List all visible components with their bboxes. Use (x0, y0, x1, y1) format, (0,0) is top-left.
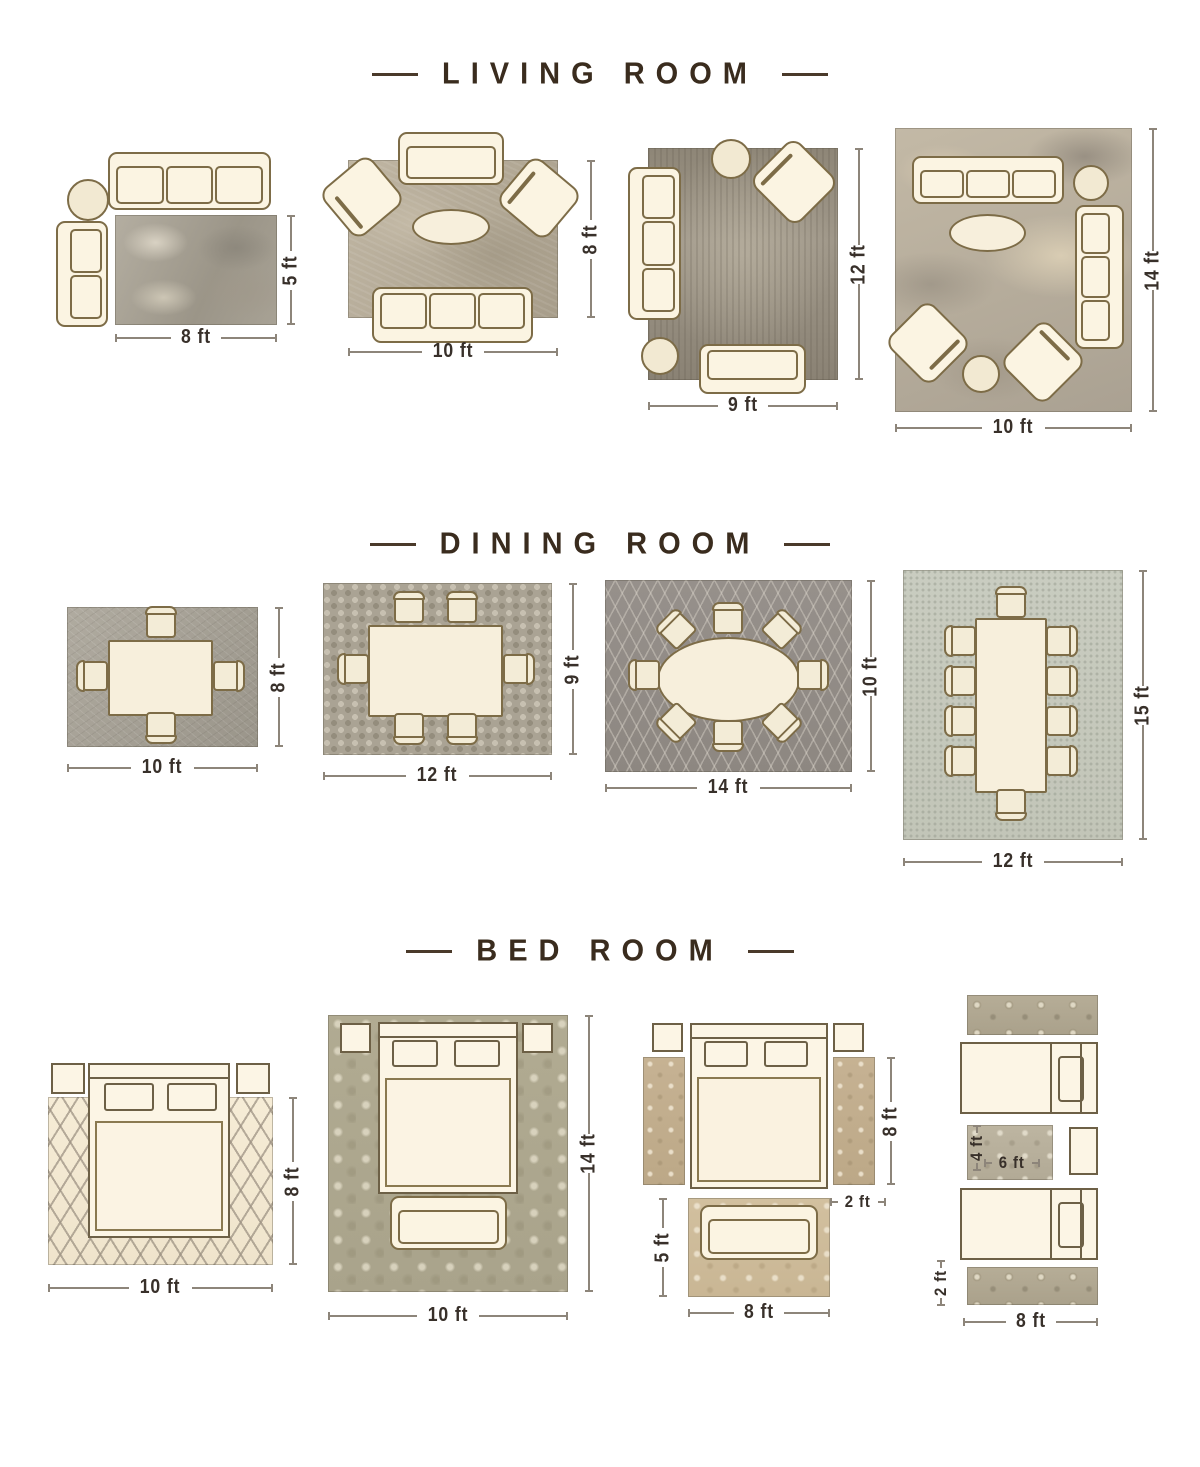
sofa-cushion (116, 166, 164, 204)
dimension-line (940, 1260, 942, 1268)
nightstand (652, 1023, 683, 1052)
sofa-cushion (1081, 300, 1110, 341)
round-side-table (67, 179, 109, 221)
height-dimension: 14 ft (1142, 128, 1164, 412)
width-dimension: 12 ft (903, 850, 1123, 873)
dining-chair (634, 660, 660, 690)
bed (378, 1022, 518, 1194)
dimension-label: 2 ft (931, 1270, 951, 1296)
dimension-line (895, 427, 982, 429)
title-dash (372, 73, 418, 76)
dining-room-title: DINING ROOM (0, 528, 1200, 561)
dimension-line (278, 607, 280, 658)
dimension-label: 8 ft (580, 224, 603, 254)
dimension-line (590, 259, 592, 319)
runner-rug (643, 1057, 685, 1185)
dining-chair (146, 712, 176, 738)
bench (390, 1196, 507, 1250)
pillow (392, 1040, 438, 1067)
dimension-line (292, 1097, 294, 1162)
dimension-label: 8 ft (1016, 1310, 1046, 1333)
width-dimension: 9 ft (648, 394, 838, 417)
dining-chair (996, 592, 1026, 618)
dimension-label: 10 ft (428, 1304, 469, 1327)
dimension-line (662, 1198, 664, 1228)
dining-table (975, 618, 1047, 793)
oval-coffee-table (949, 214, 1026, 252)
dimension-line (590, 160, 592, 220)
dimension-line (67, 767, 131, 769)
pillow (704, 1041, 748, 1067)
loveseat (398, 132, 504, 185)
dimension-line (768, 405, 838, 407)
runner-rug (833, 1057, 875, 1185)
width-dimension: 10 ft (895, 416, 1132, 439)
nightstand (340, 1023, 371, 1053)
headboard (1080, 1190, 1096, 1258)
dimension-line (878, 1201, 886, 1203)
dimension-line (469, 775, 552, 777)
title-dash (782, 73, 828, 76)
sofa-cushion (642, 268, 675, 312)
dimension-line (328, 1315, 417, 1317)
dimension-line (648, 405, 718, 407)
dimension-label: 6 ft (999, 1153, 1025, 1173)
sofa-cushion (70, 229, 102, 273)
width-dimension: 10 ft (67, 756, 258, 779)
nightstand (522, 1023, 553, 1053)
dimension-line (830, 1201, 838, 1203)
headboard (692, 1025, 826, 1039)
twin-bed (960, 1042, 1098, 1114)
dimension-line (858, 148, 860, 245)
dimension-line (290, 290, 292, 326)
dimension-line (192, 1287, 273, 1289)
dimension-label: 10 ft (860, 656, 883, 697)
living-rug-8x5 (115, 215, 277, 325)
twin-bed (960, 1188, 1098, 1260)
sofa-cushion (1081, 256, 1110, 297)
dimension-label: 8 ft (282, 1166, 305, 1196)
bed-divider (1050, 1190, 1052, 1258)
dimension-line (662, 1267, 664, 1297)
dining-chair (713, 720, 743, 746)
dining-chair (82, 661, 108, 691)
foot-rug-width-dimension: 8 ft (688, 1301, 830, 1324)
oval-coffee-table (412, 209, 490, 245)
runner-width-dimension: 2 ft (930, 1260, 952, 1312)
dining-chair (797, 660, 823, 690)
dimension-line (572, 689, 574, 756)
dimension-label: 9 ft (562, 654, 585, 684)
dimension-line (484, 351, 558, 353)
dimension-label: 8 ft (181, 326, 211, 349)
dining-chair (394, 597, 424, 623)
dimension-line (115, 337, 171, 339)
dining-chair (950, 706, 976, 736)
dimension-line (323, 775, 406, 777)
dimension-label: 2 ft (845, 1192, 871, 1212)
height-dimension: 8 ft (580, 160, 602, 318)
dining-table (368, 625, 503, 717)
living-room-title-text: LIVING ROOM (442, 57, 758, 92)
nightstand (833, 1023, 864, 1052)
round-ottoman (962, 355, 1000, 393)
pillow (167, 1083, 217, 1111)
round-table (711, 139, 751, 179)
title-dash (748, 950, 794, 953)
dimension-line (890, 1057, 892, 1102)
round-ottoman (641, 337, 679, 375)
dimension-line (278, 697, 280, 748)
dimension-line (1142, 725, 1144, 841)
dimension-line (1045, 427, 1132, 429)
dimension-label: 10 ft (993, 416, 1034, 439)
three-seat-sofa (628, 167, 681, 320)
dimension-label: 8 ft (268, 662, 291, 692)
sofa-cushion (642, 175, 675, 219)
bed (88, 1063, 230, 1238)
dimension-line (48, 1287, 129, 1289)
sofa-cushion (1081, 213, 1110, 254)
dimension-label: 15 ft (1132, 685, 1155, 726)
dimension-line (976, 1125, 978, 1133)
dimension-label: 5 ft (280, 255, 303, 285)
dimension-line (976, 1163, 978, 1171)
dimension-line (784, 1312, 830, 1314)
sofa-cushion (920, 170, 964, 198)
blanket (385, 1078, 511, 1187)
blanket (95, 1121, 223, 1231)
width-dimension: 12 ft (323, 764, 552, 787)
dining-chair (1046, 626, 1072, 656)
dimension-line (588, 1015, 590, 1134)
dimension-line (963, 1321, 1006, 1323)
loveseat (699, 344, 806, 394)
runner-width-dimension: 2 ft (830, 1192, 892, 1212)
headboard (380, 1024, 516, 1038)
dimension-line (290, 215, 292, 251)
dimension-line (1044, 861, 1123, 863)
dimension-label: 8 ft (744, 1301, 774, 1324)
dimension-line (605, 787, 697, 789)
width-dimension: 10 ft (328, 1304, 568, 1327)
dimension-line (858, 284, 860, 381)
dimension-label: 10 ft (142, 756, 183, 779)
sofa-cushion (707, 350, 798, 380)
dimension-line (1152, 290, 1154, 413)
sofa-cushion (1012, 170, 1056, 198)
nightstand (236, 1063, 270, 1094)
pillow (454, 1040, 500, 1067)
dimension-label: 10 ft (433, 340, 474, 363)
dining-chair (950, 626, 976, 656)
dining-chair (394, 713, 424, 739)
title-dash (406, 950, 452, 953)
nightstand (1069, 1127, 1098, 1175)
headboard (90, 1065, 228, 1079)
dining-chair (447, 713, 477, 739)
sofa-cushion (380, 293, 427, 329)
dimension-line (890, 1141, 892, 1186)
dining-chair (950, 666, 976, 696)
height-dimension: 5 ft (280, 215, 302, 325)
dimension-line (194, 767, 258, 769)
dimension-line (870, 696, 872, 773)
dining-chair (996, 789, 1026, 815)
dimension-label: 9 ft (728, 394, 758, 417)
sofa-cushion (406, 146, 496, 179)
three-seat-sofa (1075, 205, 1124, 349)
dining-chair (1046, 706, 1072, 736)
pillow (104, 1083, 154, 1111)
dining-chair (213, 661, 239, 691)
height-dimension: 8 ft (268, 607, 290, 747)
dimension-line (588, 1173, 590, 1292)
dimension-label: 8 ft (880, 1106, 903, 1136)
dimension-line (292, 1201, 294, 1266)
dining-chair (950, 746, 976, 776)
loveseat (700, 1205, 818, 1260)
rug-size-guide: LIVING ROOM 5 ft 8 ft 8 ft (0, 0, 1200, 1467)
sofa-cushion (642, 221, 675, 265)
dining-chair (1046, 666, 1072, 696)
pillow (764, 1041, 808, 1067)
dimension-line (221, 337, 277, 339)
dimension-line (760, 787, 852, 789)
sofa-cushion (70, 275, 102, 319)
dimension-line (1142, 570, 1144, 686)
title-dash (784, 543, 830, 546)
dimension-line (903, 861, 982, 863)
width-dimension: 10 ft (48, 1276, 273, 1299)
dimension-label: 14 ft (578, 1133, 601, 1174)
height-dimension: 10 ft (860, 580, 882, 772)
dining-chair (503, 654, 529, 684)
bed-room-title: BED ROOM (0, 935, 1200, 968)
height-dimension: 8 ft (282, 1097, 304, 1265)
dimension-line (940, 1298, 942, 1306)
sofa-cushion (478, 293, 525, 329)
dimension-label: 12 ft (993, 850, 1034, 873)
sofa-cushion (708, 1219, 810, 1254)
chair-cushion (334, 196, 363, 230)
height-dimension: 12 ft (848, 148, 870, 380)
foot-rug-height-dimension: 5 ft (652, 1198, 674, 1297)
dimension-line (870, 580, 872, 657)
dimension-line (688, 1312, 734, 1314)
title-dash (370, 543, 416, 546)
dimension-line (572, 583, 574, 650)
dining-room-title-text: DINING ROOM (440, 527, 761, 562)
dimension-line (479, 1315, 568, 1317)
height-dimension: 15 ft (1132, 570, 1154, 840)
width-dimension: 14 ft (605, 776, 852, 799)
dimension-label: 12 ft (848, 244, 871, 285)
three-seat-sofa (108, 152, 271, 210)
dining-chair (146, 612, 176, 638)
dimension-label: 12 ft (417, 764, 458, 787)
dining-chair (1046, 746, 1072, 776)
round-side-table (1073, 165, 1109, 201)
dimension-line (1056, 1321, 1099, 1323)
bed (690, 1023, 828, 1189)
dining-table (108, 640, 213, 716)
runner-rug (967, 995, 1098, 1035)
sofa-cushion (966, 170, 1010, 198)
runner-length-dimension: 8 ft (963, 1310, 1098, 1333)
sofa-cushion (166, 166, 214, 204)
dining-chair (713, 608, 743, 634)
sofa-cushion (429, 293, 476, 329)
dimension-line (1152, 128, 1154, 251)
width-dimension: 8 ft (115, 326, 277, 349)
blanket (697, 1077, 821, 1182)
runner-rug (967, 1267, 1098, 1305)
runner-length-dimension: 8 ft (880, 1057, 902, 1185)
dimension-line (984, 1162, 992, 1164)
dimension-line (348, 351, 422, 353)
between-rug-width-dimension: 6 ft (984, 1153, 1048, 1173)
dimension-line (1032, 1162, 1040, 1164)
bed-divider (1050, 1044, 1052, 1112)
dimension-label: 14 ft (1142, 250, 1165, 291)
dimension-label: 5 ft (652, 1233, 675, 1263)
dimension-label: 10 ft (140, 1276, 181, 1299)
bed-room-title-text: BED ROOM (476, 934, 724, 969)
dining-chair (447, 597, 477, 623)
two-seat-sofa (56, 221, 108, 327)
headboard (1080, 1044, 1096, 1112)
width-dimension: 10 ft (348, 340, 558, 363)
dining-chair (343, 654, 369, 684)
nightstand (51, 1063, 85, 1094)
sofa-cushion (398, 1210, 499, 1244)
three-seat-sofa (912, 156, 1064, 204)
dimension-label: 14 ft (708, 776, 749, 799)
three-seat-sofa (372, 287, 533, 343)
living-room-title: LIVING ROOM (0, 58, 1200, 91)
height-dimension: 9 ft (562, 583, 584, 755)
height-dimension: 14 ft (578, 1015, 600, 1292)
sofa-cushion (215, 166, 263, 204)
